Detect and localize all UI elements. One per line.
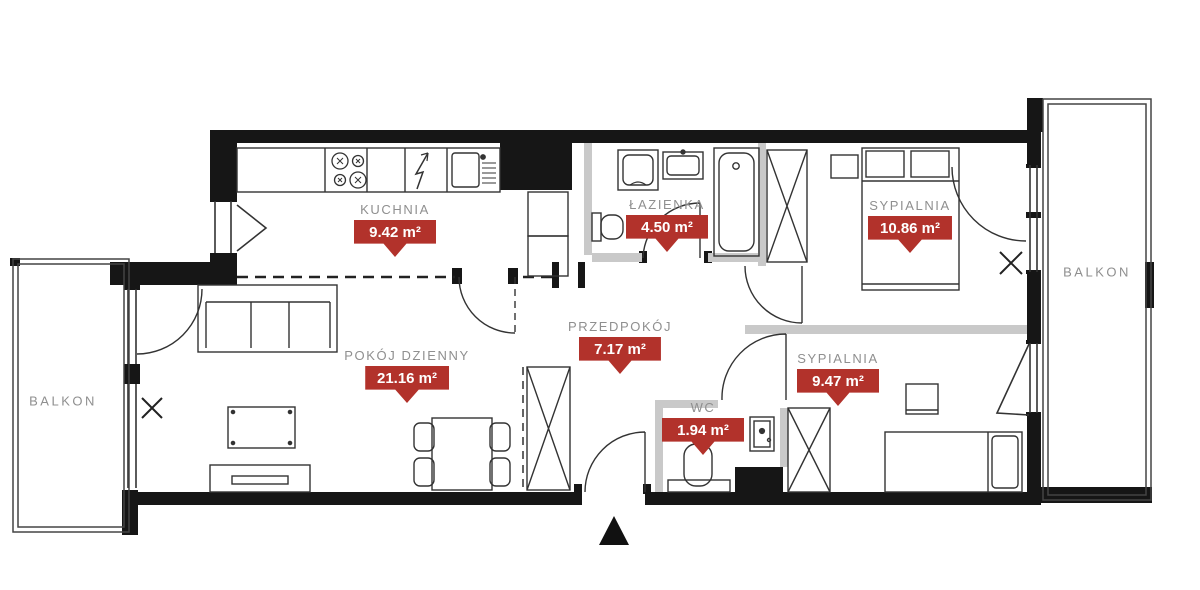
washing-machine bbox=[618, 150, 658, 190]
room-name: KUCHNIA bbox=[354, 202, 436, 217]
window-tilt-triangle bbox=[237, 205, 266, 251]
tv-stand bbox=[210, 465, 310, 492]
area-badge: 1.94 m² bbox=[662, 418, 744, 455]
dining-table-chairs bbox=[414, 418, 510, 490]
room-name: PRZEDPOKÓJ bbox=[568, 319, 672, 334]
fridge-cabinets bbox=[528, 192, 568, 276]
floor-plan: KUCHNIA 9.42 m² ŁAZIENKA 4.50 m² SYPIALN… bbox=[0, 0, 1200, 590]
floor-plan-drawing bbox=[0, 0, 1200, 590]
entrance-marker bbox=[599, 516, 629, 545]
coffee-table bbox=[228, 407, 295, 448]
wardrobe-x-bedroom2 bbox=[788, 408, 830, 492]
electric-bolt bbox=[416, 153, 428, 189]
kitchen-sink bbox=[452, 153, 496, 187]
stove-burners bbox=[332, 153, 366, 188]
partition-walls bbox=[584, 143, 1027, 492]
balcony-railings bbox=[13, 99, 1151, 532]
room-label-pokoj-dzienny: POKÓJ DZIENNY 21.16 m² bbox=[344, 348, 470, 403]
bathtub bbox=[714, 148, 759, 256]
nightstand bbox=[831, 155, 858, 178]
balcony-label-left: BALKON bbox=[29, 394, 97, 409]
balcony-label-right: BALKON bbox=[1063, 265, 1131, 280]
wardrobe-x-bedroom1 bbox=[767, 150, 807, 262]
sofa bbox=[198, 285, 337, 352]
room-label-wc: WC 1.94 m² bbox=[662, 400, 744, 455]
structural-walls bbox=[10, 98, 1154, 535]
room-label-sypialnia-2: SYPIALNIA 9.47 m² bbox=[797, 351, 879, 406]
room-label-przedpokoj: PRZEDPOKÓJ 7.17 m² bbox=[568, 319, 672, 374]
area-badge: 7.17 m² bbox=[579, 337, 661, 374]
area-badge: 10.86 m² bbox=[868, 216, 952, 253]
room-label-kuchnia: KUCHNIA 9.42 m² bbox=[354, 202, 436, 257]
area-badge: 4.50 m² bbox=[626, 215, 708, 252]
room-name: ŁAZIENKA bbox=[626, 197, 708, 212]
room-name: WC bbox=[662, 400, 744, 415]
room-name: POKÓJ DZIENNY bbox=[344, 348, 470, 363]
electrical-panel bbox=[750, 417, 774, 451]
area-badge: 21.16 m² bbox=[365, 366, 449, 403]
wardrobe-x-hallway bbox=[527, 367, 570, 490]
room-label-sypialnia-1: SYPIALNIA 10.86 m² bbox=[868, 198, 952, 253]
area-badge: 9.42 m² bbox=[354, 220, 436, 257]
single-bed bbox=[885, 432, 1022, 492]
window-tilt-triangle bbox=[997, 344, 1029, 415]
desk bbox=[906, 384, 938, 414]
room-name: SYPIALNIA bbox=[797, 351, 879, 366]
room-label-lazienka: ŁAZIENKA 4.50 m² bbox=[626, 197, 708, 252]
area-badge: 9.47 m² bbox=[797, 369, 879, 406]
room-name: SYPIALNIA bbox=[868, 198, 952, 213]
toilet bbox=[592, 213, 623, 241]
bathroom-sink bbox=[663, 150, 703, 179]
kitchen-counter bbox=[237, 148, 500, 192]
